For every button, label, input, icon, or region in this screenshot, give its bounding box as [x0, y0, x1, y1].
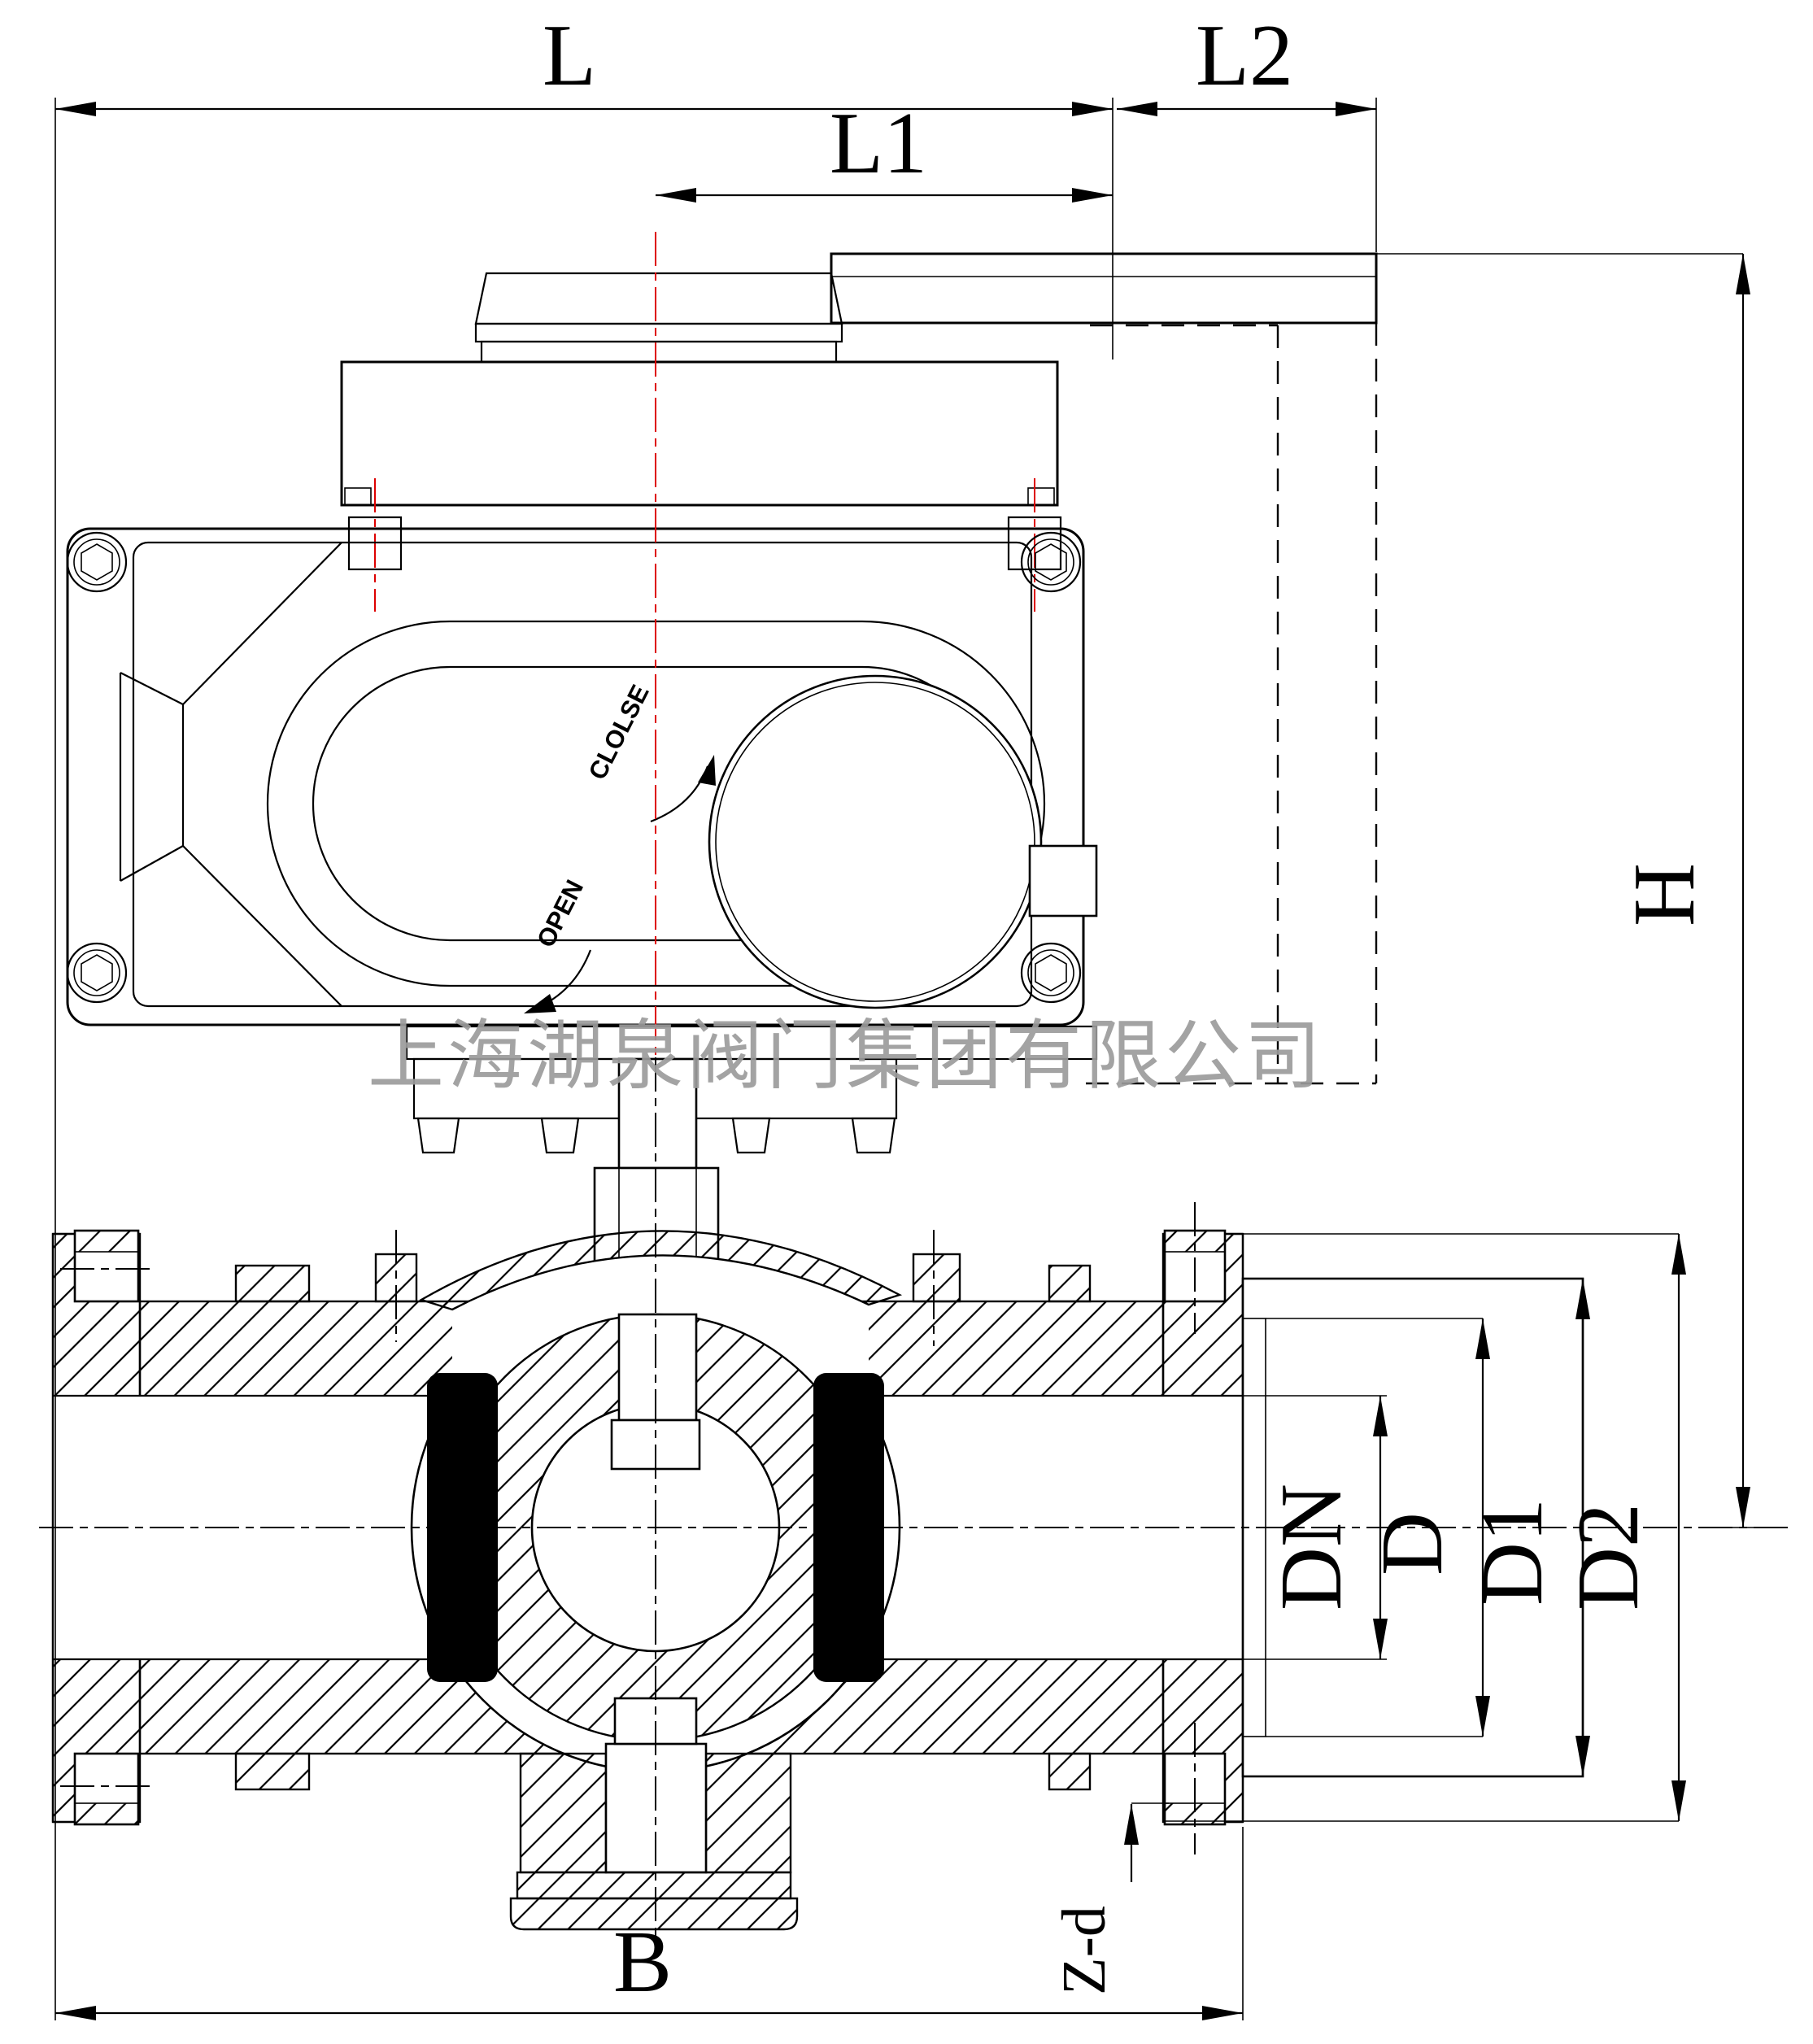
gear-housing: [342, 362, 1061, 612]
dimension-Zd-label: Z-d: [1050, 1906, 1118, 1995]
open-arrowhead: [524, 994, 556, 1013]
dimension-L1: L1: [656, 95, 1113, 203]
terminal-block: [831, 254, 1376, 323]
bevel-facets: [120, 543, 342, 1006]
phantom-box: [1086, 323, 1376, 1083]
dimension-H: H: [1616, 254, 1750, 1528]
actuator-top-cap: [476, 273, 842, 362]
company-watermark: 上海湖泉阀门集团有限公司: [368, 1014, 1324, 1099]
dimension-D2-label: D2: [1560, 1503, 1657, 1610]
dimension-L-label: L: [543, 7, 596, 104]
bolt-bottom-left: [68, 944, 126, 1002]
stem-slot: [619, 1314, 696, 1420]
drawing-page: CLOLSE OPEN: [0, 0, 1813, 2044]
bolt-bottom-right: [1022, 944, 1080, 1002]
close-marking: CLOLSE: [583, 680, 655, 784]
dimension-H-label: H: [1616, 863, 1713, 926]
valve-drawing: CLOLSE OPEN: [0, 0, 1813, 2044]
dimension-L1-label: L1: [830, 95, 927, 192]
bolt-top-left: [68, 533, 126, 591]
dimension-L2-label: L2: [1196, 7, 1293, 104]
dimension-L2: L2: [1117, 7, 1376, 116]
dimension-Zd: Z-d: [1050, 1803, 1169, 1995]
dimension-D1-label: D1: [1464, 1498, 1561, 1606]
override-knob: CLOLSE OPEN: [524, 676, 1096, 1013]
dimension-L: L: [55, 7, 1113, 116]
dimension-DN-label: DN: [1263, 1484, 1360, 1610]
close-arrowhead: [698, 755, 716, 786]
dimension-D-label: D: [1364, 1512, 1461, 1575]
knob-handle-stub: [1030, 846, 1096, 916]
dimension-B-label: B: [613, 1914, 672, 2011]
actuator-body: CLOLSE OPEN: [68, 529, 1096, 1025]
close-arrow: [651, 766, 708, 822]
bolt-top-right: [1022, 533, 1080, 591]
